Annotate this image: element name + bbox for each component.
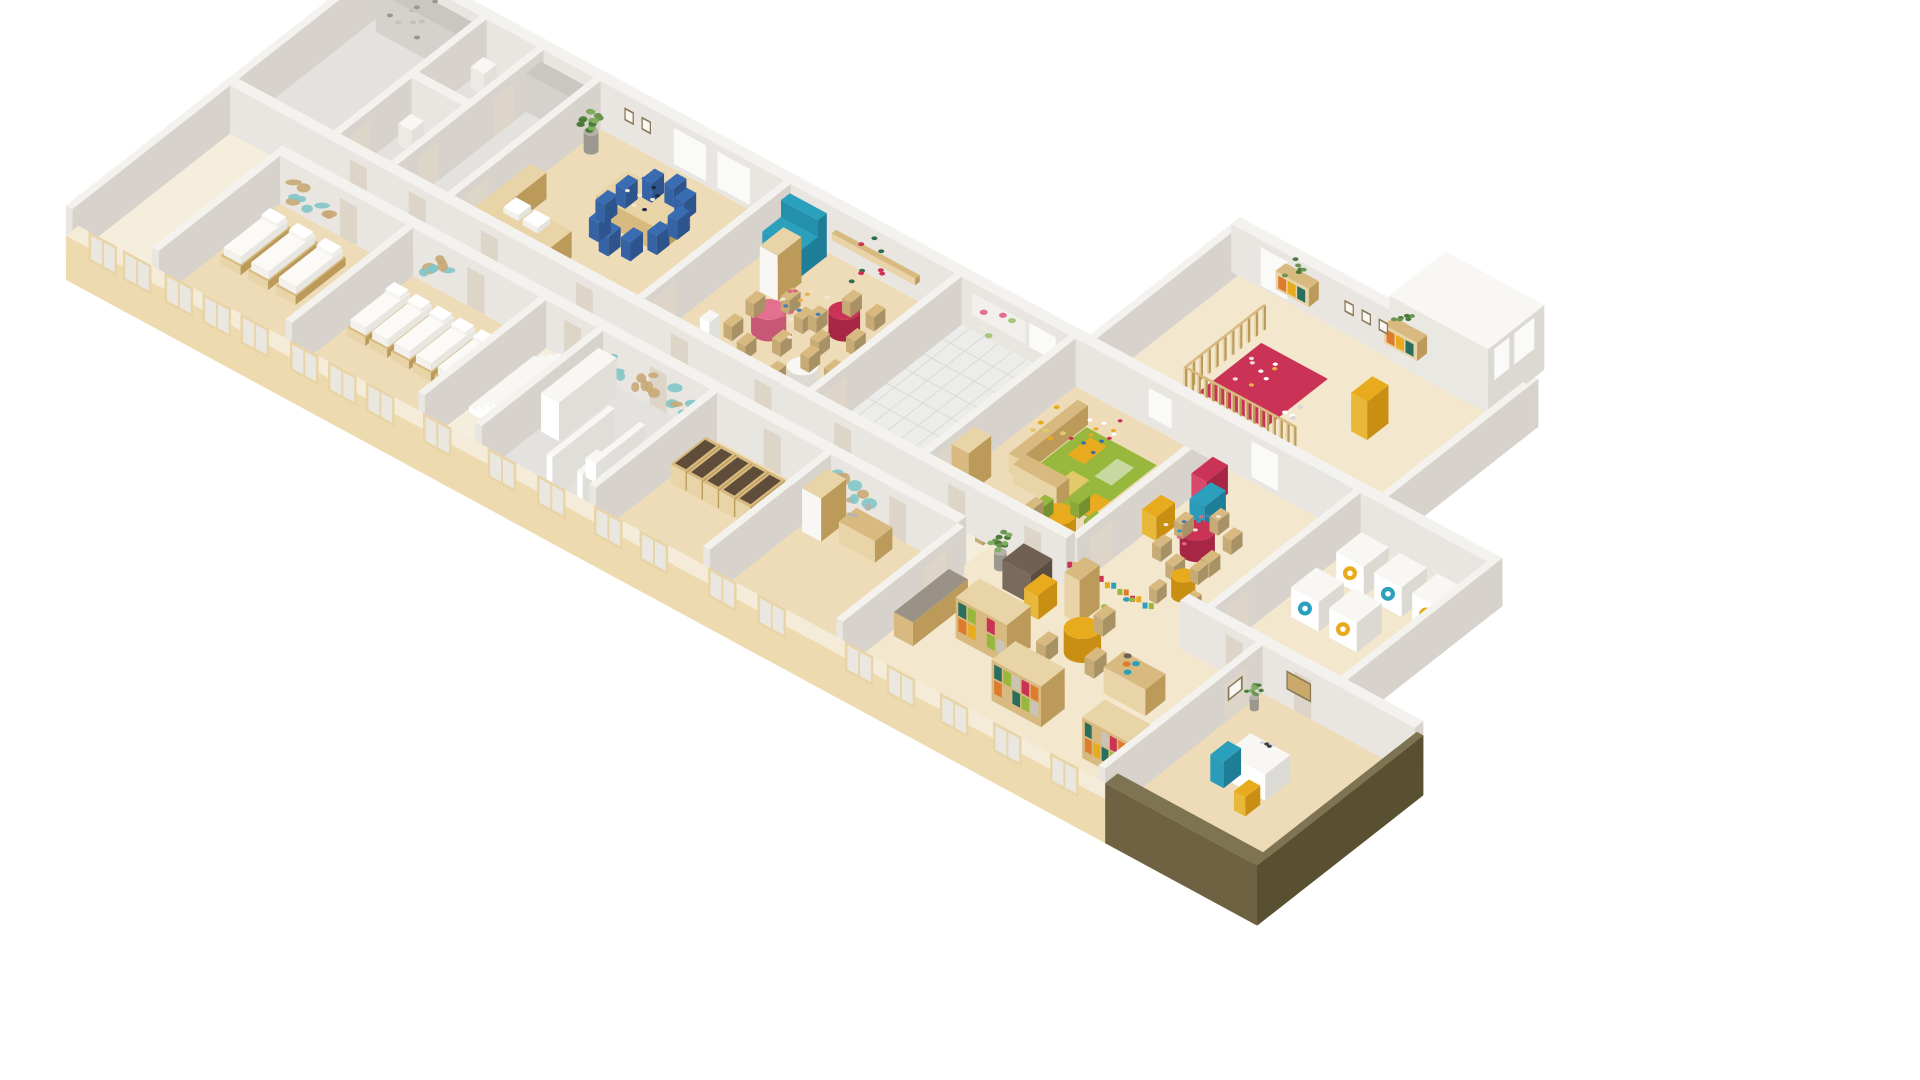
floorplan-render — [0, 0, 1920, 1080]
isometric-building-scene — [0, 0, 1920, 1080]
building — [66, 0, 1544, 926]
